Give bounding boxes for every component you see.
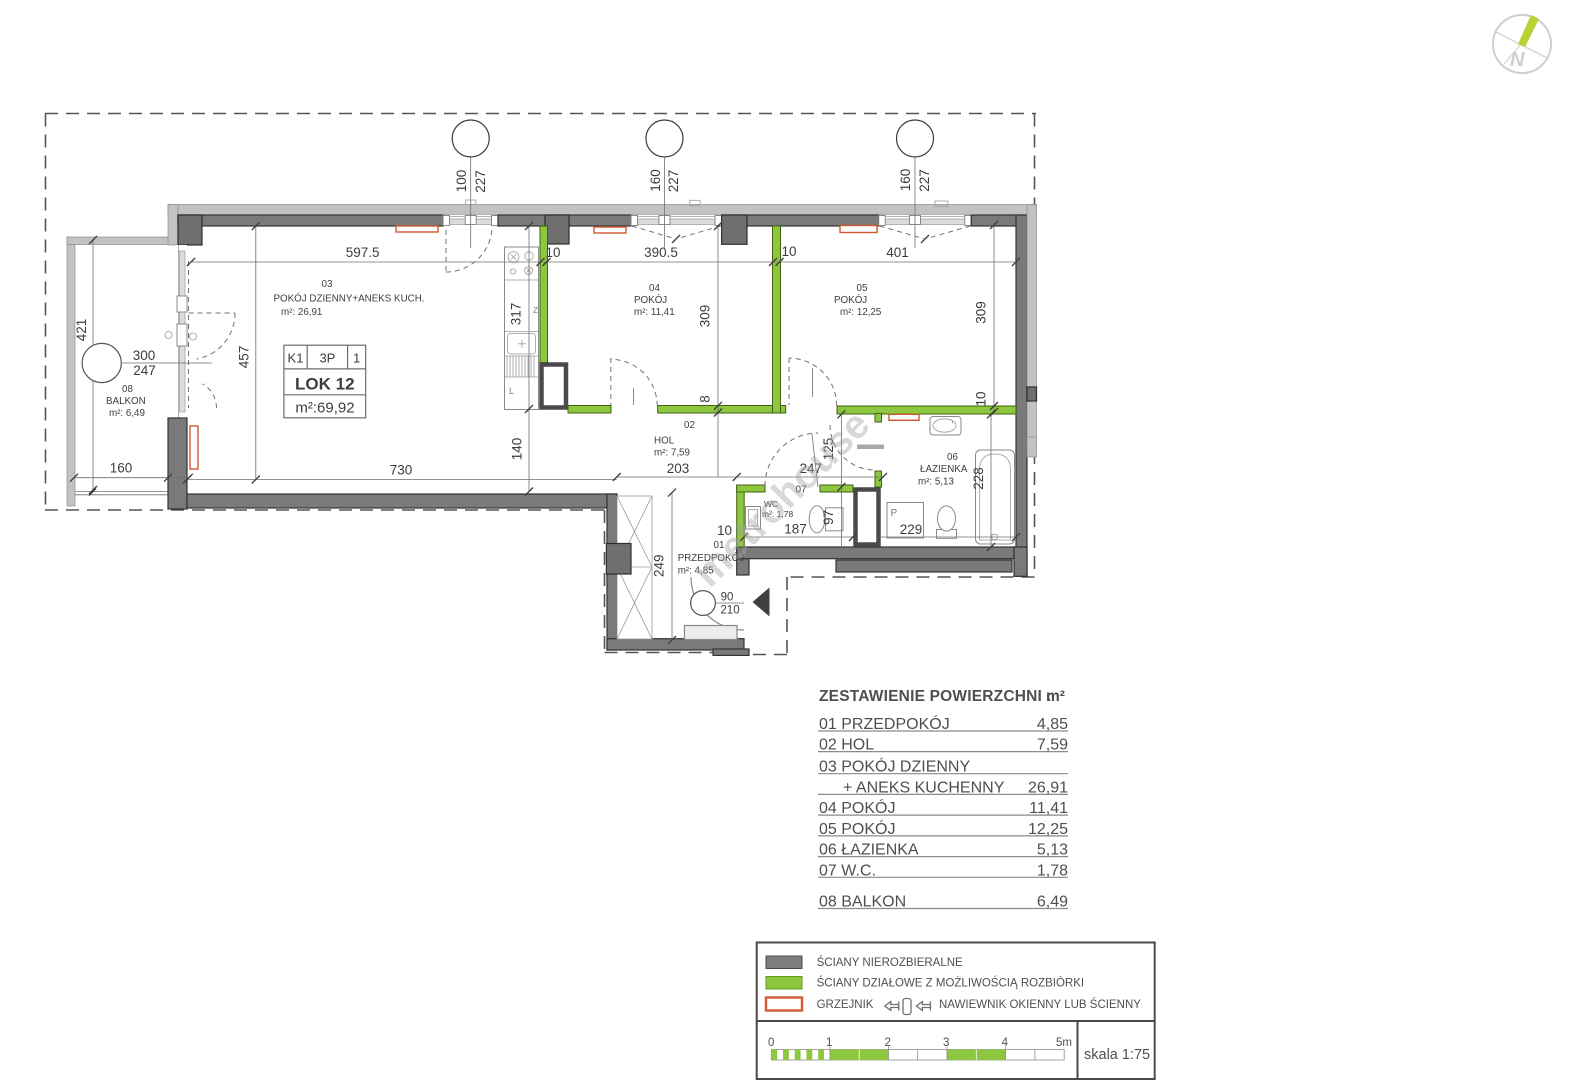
svg-text:421: 421	[74, 319, 89, 342]
svg-text:210: 210	[720, 605, 739, 617]
svg-text:10: 10	[781, 244, 796, 259]
svg-text:5m: 5m	[1056, 1037, 1072, 1049]
svg-text:POKÓJ DZIENNY+ANEKS KUCH.: POKÓJ DZIENNY+ANEKS KUCH.	[273, 294, 424, 305]
svg-text:07 W.C.: 07 W.C.	[819, 863, 876, 880]
svg-text:90: 90	[721, 592, 734, 604]
svg-text:300: 300	[133, 348, 156, 363]
svg-text:Z: Z	[533, 306, 538, 315]
svg-text:03: 03	[322, 279, 333, 290]
svg-text:1: 1	[353, 351, 360, 366]
svg-text:228: 228	[971, 467, 986, 490]
svg-text:K1: K1	[288, 351, 304, 366]
svg-text:P: P	[891, 508, 898, 519]
svg-text:4: 4	[1002, 1037, 1009, 1049]
svg-text:249: 249	[652, 554, 667, 577]
svg-text:140: 140	[510, 438, 525, 461]
svg-text:7,59: 7,59	[1037, 737, 1068, 754]
svg-text:04 POKÓJ: 04 POKÓJ	[819, 798, 895, 817]
svg-text:ZESTAWIENIE POWIERZCHNI :: ZESTAWIENIE POWIERZCHNI :	[819, 688, 1052, 705]
svg-text:160: 160	[648, 169, 663, 192]
svg-text:8: 8	[698, 395, 713, 403]
svg-text:317: 317	[509, 303, 524, 326]
svg-text:08 BALKON: 08 BALKON	[819, 894, 906, 911]
svg-text:6,49: 6,49	[1037, 894, 1068, 911]
svg-text:ŁAZIENKA: ŁAZIENKA	[920, 464, 968, 475]
svg-text:LOK 12: LOK 12	[295, 375, 355, 394]
svg-text:m²: m²	[1046, 688, 1065, 705]
svg-text:04: 04	[649, 283, 660, 294]
svg-text:ŚCIANY NIEROZBIERALNE: ŚCIANY NIEROZBIERALNE	[817, 956, 963, 969]
svg-text:3P: 3P	[319, 351, 335, 366]
svg-text:m²: 26,91: m²: 26,91	[281, 307, 322, 318]
svg-text:06: 06	[947, 452, 958, 463]
svg-text:203: 203	[667, 461, 690, 476]
svg-text:11,41: 11,41	[1029, 800, 1068, 817]
svg-text:N: N	[1510, 49, 1525, 71]
svg-text:m²: 6,49: m²: 6,49	[109, 408, 145, 419]
svg-text:ŚCIANY DZIAŁOWE Z MOŻLIWOŚCIĄ: ŚCIANY DZIAŁOWE Z MOŻLIWOŚCIĄ ROZBIÓRKI	[817, 977, 1085, 990]
svg-text:160: 160	[898, 169, 913, 192]
svg-text:03 POKÓJ DZIENNY: 03 POKÓJ DZIENNY	[819, 757, 970, 776]
svg-text:08: 08	[122, 384, 133, 395]
svg-text:02: 02	[684, 420, 695, 431]
svg-text:m²: 11,41: m²: 11,41	[634, 307, 675, 318]
svg-text:POKÓJ: POKÓJ	[834, 295, 867, 306]
svg-text:12,25: 12,25	[1028, 821, 1068, 838]
svg-text:05: 05	[857, 283, 868, 294]
svg-text:06 ŁAZIENKA: 06 ŁAZIENKA	[819, 842, 919, 859]
svg-text:390.5: 390.5	[644, 245, 678, 260]
svg-text:POKÓJ: POKÓJ	[634, 295, 667, 306]
svg-text:2: 2	[885, 1037, 891, 1049]
svg-text:1,78: 1,78	[1037, 863, 1068, 880]
svg-text:160: 160	[110, 461, 133, 476]
svg-text:L: L	[509, 386, 514, 396]
svg-text:BALKON: BALKON	[106, 396, 146, 407]
svg-text:GRZEJNIK: GRZEJNIK	[817, 999, 874, 1011]
svg-text:NAWIEWNIK OKIENNY LUB ŚCIENNY: NAWIEWNIK OKIENNY LUB ŚCIENNY	[939, 998, 1141, 1011]
svg-text:4,85: 4,85	[1037, 716, 1068, 733]
svg-text:5,13: 5,13	[1037, 842, 1068, 859]
svg-text:m²:69,92: m²:69,92	[295, 400, 354, 417]
svg-text:m²: 7,59: m²: 7,59	[654, 448, 690, 459]
svg-text:227: 227	[917, 169, 932, 192]
svg-text:1: 1	[826, 1037, 832, 1049]
svg-text:10: 10	[545, 245, 560, 260]
svg-text:05 POKÓJ: 05 POKÓJ	[819, 819, 895, 838]
svg-text:skala 1:75: skala 1:75	[1084, 1047, 1150, 1063]
svg-text:+ ANEKS KUCHENNY: + ANEKS KUCHENNY	[843, 780, 1005, 797]
svg-text:3: 3	[943, 1037, 949, 1049]
svg-text:247: 247	[133, 363, 156, 378]
svg-text:26,91: 26,91	[1028, 780, 1068, 797]
svg-text:309: 309	[974, 301, 989, 324]
svg-text:02 HOL: 02 HOL	[819, 737, 874, 754]
svg-text:229: 229	[900, 522, 923, 537]
svg-text:457: 457	[237, 346, 252, 369]
svg-text:01 PRZEDPOKÓJ: 01 PRZEDPOKÓJ	[819, 714, 950, 733]
svg-text:10: 10	[974, 391, 989, 406]
svg-text:0: 0	[768, 1037, 774, 1049]
svg-text:597.5: 597.5	[346, 245, 380, 260]
svg-text:m²: 12,25: m²: 12,25	[840, 307, 882, 318]
svg-text:100: 100	[454, 170, 469, 193]
svg-text:HOL: HOL	[654, 436, 675, 447]
svg-text:97: 97	[821, 510, 836, 525]
svg-text:m²: 5,13: m²: 5,13	[918, 477, 954, 488]
svg-text:401: 401	[886, 245, 909, 260]
svg-text:227: 227	[666, 170, 681, 193]
svg-text:730: 730	[390, 463, 413, 478]
svg-text:309: 309	[698, 305, 713, 328]
svg-text:227: 227	[473, 170, 488, 193]
